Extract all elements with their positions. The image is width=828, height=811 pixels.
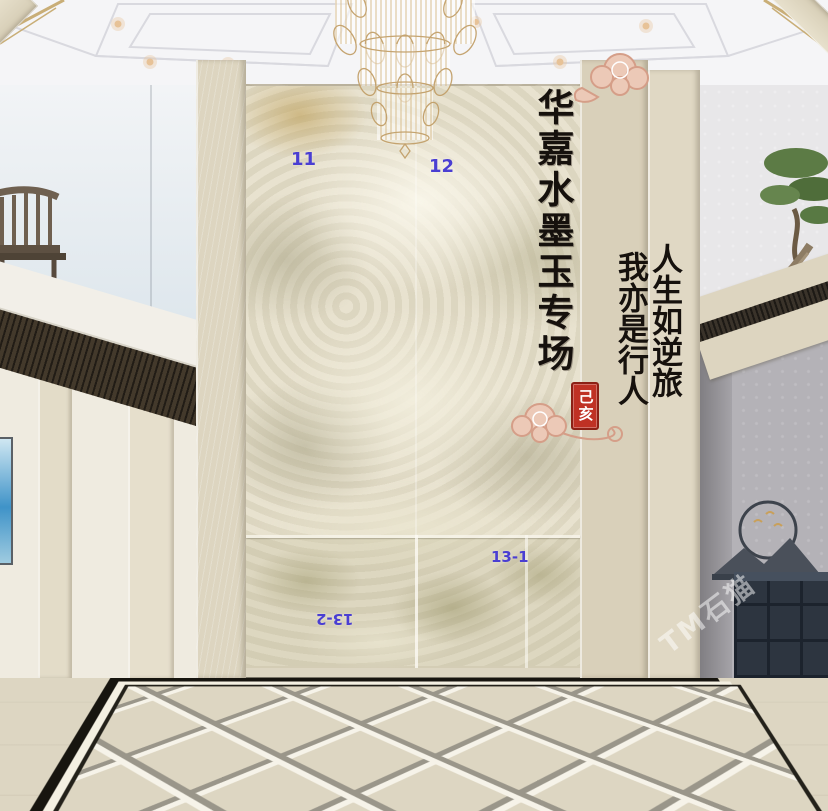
floor-lattice-field bbox=[0, 685, 828, 811]
corridor-column bbox=[128, 378, 174, 678]
slab-number-13-2: 13-2 bbox=[316, 610, 354, 628]
slab-number-12: 12 bbox=[429, 156, 454, 177]
slab-number-13-1: 13-1 bbox=[491, 548, 529, 566]
floor-border-black bbox=[0, 677, 828, 811]
auspicious-cloud-icon bbox=[568, 44, 668, 110]
wall-art-blue bbox=[0, 437, 13, 565]
title-calligraphy: 华嘉水墨玉专场 bbox=[534, 88, 571, 388]
slab-seam bbox=[246, 535, 580, 538]
poem-line-left: 我亦是行人 bbox=[614, 251, 645, 421]
onyx-lower-slabs bbox=[246, 535, 580, 668]
lobby-interior-render: 11 12 13-1 13-2 bbox=[0, 0, 828, 811]
corridor-column bbox=[38, 370, 72, 678]
poem-line-right: 人生如逆旅 bbox=[648, 243, 679, 413]
slab-seam bbox=[415, 535, 418, 668]
seal-text: 己亥 bbox=[578, 389, 593, 423]
seal-stamp: 己亥 bbox=[571, 382, 599, 430]
marble-floor bbox=[0, 662, 828, 811]
marble-pilaster-left bbox=[196, 60, 246, 678]
glass-panel-edge bbox=[150, 85, 152, 337]
floor-border-white bbox=[0, 681, 828, 811]
chandelier-icon bbox=[305, 0, 505, 156]
onyx-feature-wall: 11 12 13-1 13-2 bbox=[246, 84, 580, 666]
